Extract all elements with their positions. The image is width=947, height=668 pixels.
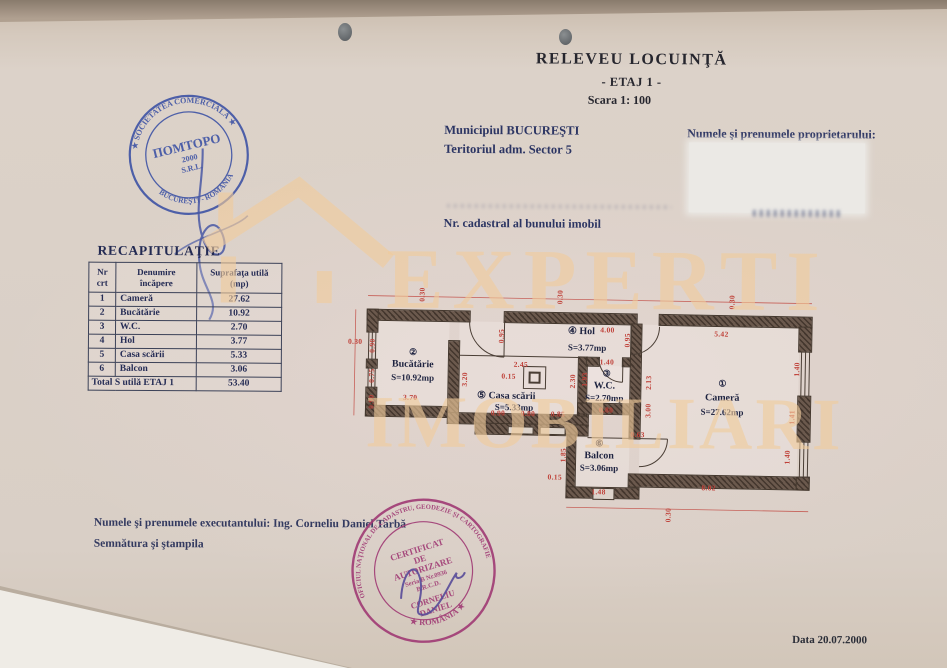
table-cell: 3.06: [196, 363, 281, 378]
dimension-label: 0.80: [599, 405, 613, 414]
stair-symbol-inner: [529, 373, 539, 383]
room-label: S=3.06mp: [580, 462, 619, 473]
document-title: RELEVEU LOCUINŢĂ: [482, 50, 782, 70]
room-label: S=27.62mp: [700, 407, 743, 418]
dimension-label: 2.45: [514, 360, 528, 369]
room-label: ⑥: [595, 438, 603, 449]
dimension-label: 0.30: [727, 295, 736, 309]
room-label: S=10.92mp: [391, 372, 434, 383]
dimension-label: 8.02: [701, 483, 715, 492]
house-roof: [206, 186, 388, 261]
room-label: S=3.77mp: [568, 342, 607, 353]
dimension-label: 5.42: [714, 329, 728, 338]
table-cell: 2.70: [196, 321, 281, 336]
table-cell: 5.33: [196, 349, 281, 364]
dimension-label: 3.70: [403, 393, 417, 402]
dimension-label: 3.00: [643, 403, 652, 417]
table-row: 6Balcon3.06: [88, 362, 281, 377]
table-cell: 6: [88, 362, 115, 376]
dimension-label: 0.15: [501, 372, 515, 381]
dimension-label: 1.40: [783, 450, 792, 464]
dimension-label: 0.90: [368, 338, 377, 352]
table-total-label: Total S utilă ETAJ 1: [88, 376, 196, 391]
table-cell: 5: [88, 348, 115, 362]
floor-subtitle: - ETAJ 1 -: [481, 74, 781, 91]
cadastral-label: Nr. cadastral al bunului imobil: [444, 216, 601, 232]
dimension-label: 0.80: [521, 409, 535, 418]
watermark-house-icon: [198, 174, 394, 315]
room-label: Bucătărie: [392, 359, 434, 371]
room-label: Cameră: [705, 392, 740, 404]
dimension-label: 1.40: [600, 357, 614, 366]
table-cell: 3.77: [196, 335, 281, 350]
dimension-label: 0.85: [551, 409, 565, 418]
dimension-label: 1.85: [559, 448, 568, 462]
table-header-cell: Denumire încăpere: [116, 262, 197, 292]
partition-line: [459, 355, 579, 357]
dimension-label: 0.75: [367, 368, 376, 382]
table-cell: W.C.: [115, 320, 196, 334]
dimension-label: 0.15: [548, 472, 562, 481]
table-row: 5Casa scării5.33: [88, 348, 281, 363]
room-label: ⑤ Casa scării: [477, 390, 536, 402]
signature-line: Semnătura şi ştampila: [94, 538, 204, 551]
table-row: 4Hol3.77: [88, 334, 281, 349]
dimension-label: 1.41: [787, 410, 796, 424]
table-cell: 1: [89, 292, 116, 306]
door-arc: [631, 326, 660, 355]
dimension-label: 0.30: [348, 337, 362, 346]
window-lines: [799, 442, 808, 478]
window-lines: [801, 352, 810, 397]
dimension-label: 0.95: [623, 333, 632, 347]
room-label: ③: [603, 368, 611, 379]
table-cell: Hol: [115, 334, 196, 348]
dimension-label: 1.93: [580, 372, 589, 386]
table-cell: 4: [88, 334, 115, 348]
scanned-document: RELEVEU LOCUINŢĂ - ETAJ 1 - Scara 1: 100…: [0, 0, 947, 668]
stair-symbol-outer: [523, 366, 545, 388]
room-label: W.C.: [594, 380, 616, 391]
dimension-label: 0.30: [555, 290, 564, 304]
room-label: S=2.70mp: [585, 393, 624, 404]
table-row: 3W.C.2.70: [88, 320, 281, 335]
table-cell: Cameră: [116, 292, 197, 306]
date-label: Data 20.07.2000: [792, 634, 867, 646]
dimension-label: 0.90: [491, 408, 505, 417]
table-header-cell: Nr crt: [89, 262, 116, 292]
dimension-label: 1.40: [792, 362, 801, 376]
dimension-label: 0.90: [366, 394, 375, 408]
dimension-label: 0.30: [663, 508, 672, 522]
dimension-label: 1.48: [591, 487, 605, 496]
dimension-label: 0.63: [630, 430, 644, 439]
dimension-label: 2.13: [644, 375, 653, 389]
dimension-label: 3.20: [460, 372, 469, 386]
table-total-row: Total S utilă ETAJ 153.40: [88, 376, 281, 391]
table-total-value: 53.40: [196, 377, 281, 392]
redacted-owner-area: [689, 142, 865, 213]
document-content: RELEVEU LOCUINŢĂ - ETAJ 1 - Scara 1: 100…: [0, 0, 947, 668]
dimension-label: 0.30: [417, 287, 426, 301]
table-cell: Casa scării: [115, 348, 196, 362]
municipality-line2: Teritoriul adm. Sector 5: [444, 140, 579, 160]
blurred-text-smudge: [753, 210, 841, 218]
room-label: ④ Hol: [568, 326, 595, 337]
room-label: ②: [409, 347, 417, 358]
room-label: ①: [718, 379, 726, 390]
faint-text-smudge: [447, 204, 672, 209]
partition-line: [587, 438, 629, 439]
room-label: Balcon: [584, 450, 614, 462]
scale-label: Scara 1: 100: [469, 92, 769, 109]
table-cell: Balcon: [115, 362, 196, 376]
dimension-label: 4.00: [600, 325, 614, 334]
table-cell: Bucătărie: [116, 306, 197, 320]
table-cell: 3: [88, 320, 115, 334]
door-arc: [639, 439, 668, 468]
municipality-line1: Municipiul BUCUREŞTI: [444, 121, 579, 141]
dimension-label: 2.30: [568, 374, 577, 388]
table-cell: 2: [89, 306, 116, 320]
owner-label: Numele şi prenumele proprietarului:: [687, 126, 876, 142]
municipality-block: Municipiul BUCUREŞTI Teritoriul adm. Sec…: [444, 121, 579, 160]
dimension-label: 0.95: [497, 329, 506, 343]
